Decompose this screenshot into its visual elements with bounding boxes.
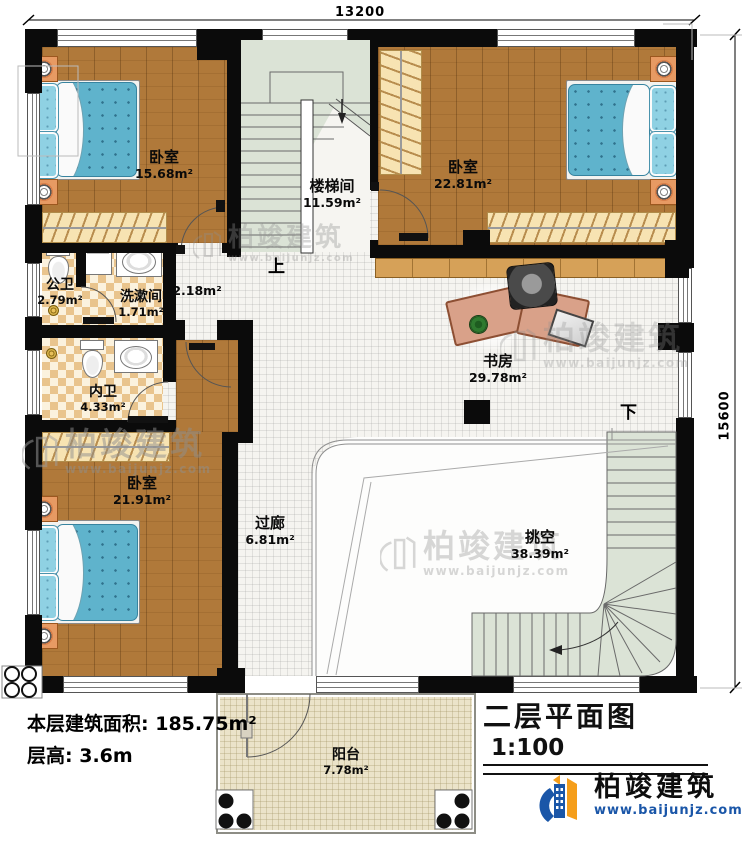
wall-segment [370,245,676,258]
bed-sheet-fold [623,84,650,176]
wall-segment [222,432,238,678]
room-label-public-bath: 公卫 2.79m² [37,277,82,308]
window [27,530,40,615]
wall-segment [370,40,378,190]
wall-segment [676,418,694,693]
toilet-tank [80,340,104,350]
floor-drain-icon [46,348,57,359]
brand-name: 柏竣建筑 [594,772,743,803]
wardrobe [42,212,167,243]
wall-pillar [464,400,490,424]
floor-bedroom-entry-nook [176,340,238,432]
window [316,676,419,693]
wall-segment [25,325,176,338]
window [497,29,635,47]
lamp-icon [655,60,673,78]
wall-segment [25,205,42,263]
wall-segment [25,420,176,432]
floor-height-line: 层高: 3.6m [27,740,257,772]
bed-mattress [56,524,138,621]
dimension-right: 15600 [718,390,733,440]
floor-area-label: 本层建筑面积: [27,713,149,735]
floor-area-value: 185.75m² [155,713,256,735]
wardrobe [487,212,676,243]
bed-sheet-fold [56,524,83,621]
room-label-hall-area: 2.18m² [172,283,221,298]
bed-pillow [650,86,676,132]
bed-mattress [56,82,137,177]
window [678,352,692,418]
brand-url: www.baijunjz.com [594,803,743,818]
floor-height-label: 层高: [27,745,73,767]
sink [122,250,156,274]
plant-icon [470,316,487,333]
brand-logo-icon [536,772,586,828]
lamp-icon [655,183,673,201]
floor-height-value: 3.6m [79,745,132,767]
wall-segment [419,676,513,693]
wall-segment [676,29,694,268]
room-label-balcony: 阳台 7.78m² [323,747,368,778]
stair-up-label: 上 [268,252,285,277]
wall-segment [25,243,178,253]
window [27,350,40,415]
bed-pillow [650,132,676,176]
wall-segment [25,415,42,530]
room-label-bedroom-top-left: 卧室 15.68m² [135,148,193,181]
room-label-void: 挑空 38.39m² [511,528,569,561]
wall-segment [238,340,253,443]
office-chair [506,262,558,311]
wall-pillar [217,668,245,693]
nightstand [650,179,678,205]
room-label-corridor: 过廊 6.81m² [245,514,294,547]
wall-segment [227,40,241,257]
room-label-washroom: 洗漱间 1.71m² [118,289,163,320]
wall-segment [25,676,63,693]
wall-pillar [658,323,678,350]
room-label-bedroom-bottom-left: 卧室 21.91m² [113,474,171,507]
window [513,676,640,693]
stair-down-label: 下 [620,398,637,423]
void-opening-area [312,437,682,676]
brand-logo: 柏竣建筑 www.baijunjz.com [536,772,743,828]
room-label-inner-bath: 内卫 4.33m² [80,384,125,415]
wall-segment [222,243,241,253]
sink [120,346,152,369]
wall-segment [25,29,42,93]
wardrobe [380,50,422,175]
bed-sheet-fold [56,82,83,177]
wall-segment [676,323,694,352]
bed-mattress [568,84,650,176]
wardrobe [42,432,170,462]
wall-pillar [665,240,689,278]
room-label-stairwell: 楼梯间 11.59m² [303,177,361,210]
window [262,29,348,47]
wall-segment [163,320,185,340]
window [57,29,197,47]
dimension-top: 13200 [335,5,385,20]
window [27,93,40,205]
wall-pillar [463,230,490,258]
room-label-bedroom-top-right: 卧室 22.81m² [434,158,492,191]
floor-plan-canvas: 柏竣建筑www.baijunjz.com 柏竣建筑www.baijunjz.co… [0,0,750,843]
wall-segment [640,676,697,693]
nightstand [650,56,678,82]
wall-segment [217,320,253,340]
title-block: 二层平面图1:100 [483,695,708,775]
wall-segment [163,338,176,382]
plan-scale: 1:100 [491,735,564,761]
balcony-door-opening [245,676,316,693]
window [63,676,188,693]
room-label-study: 书房 29.78m² [469,352,527,385]
plan-info: 本层建筑面积: 185.75m² 层高: 3.6m [27,708,257,772]
plan-title: 二层平面图 [483,700,638,733]
floor-area-line: 本层建筑面积: 185.75m² [27,708,257,740]
